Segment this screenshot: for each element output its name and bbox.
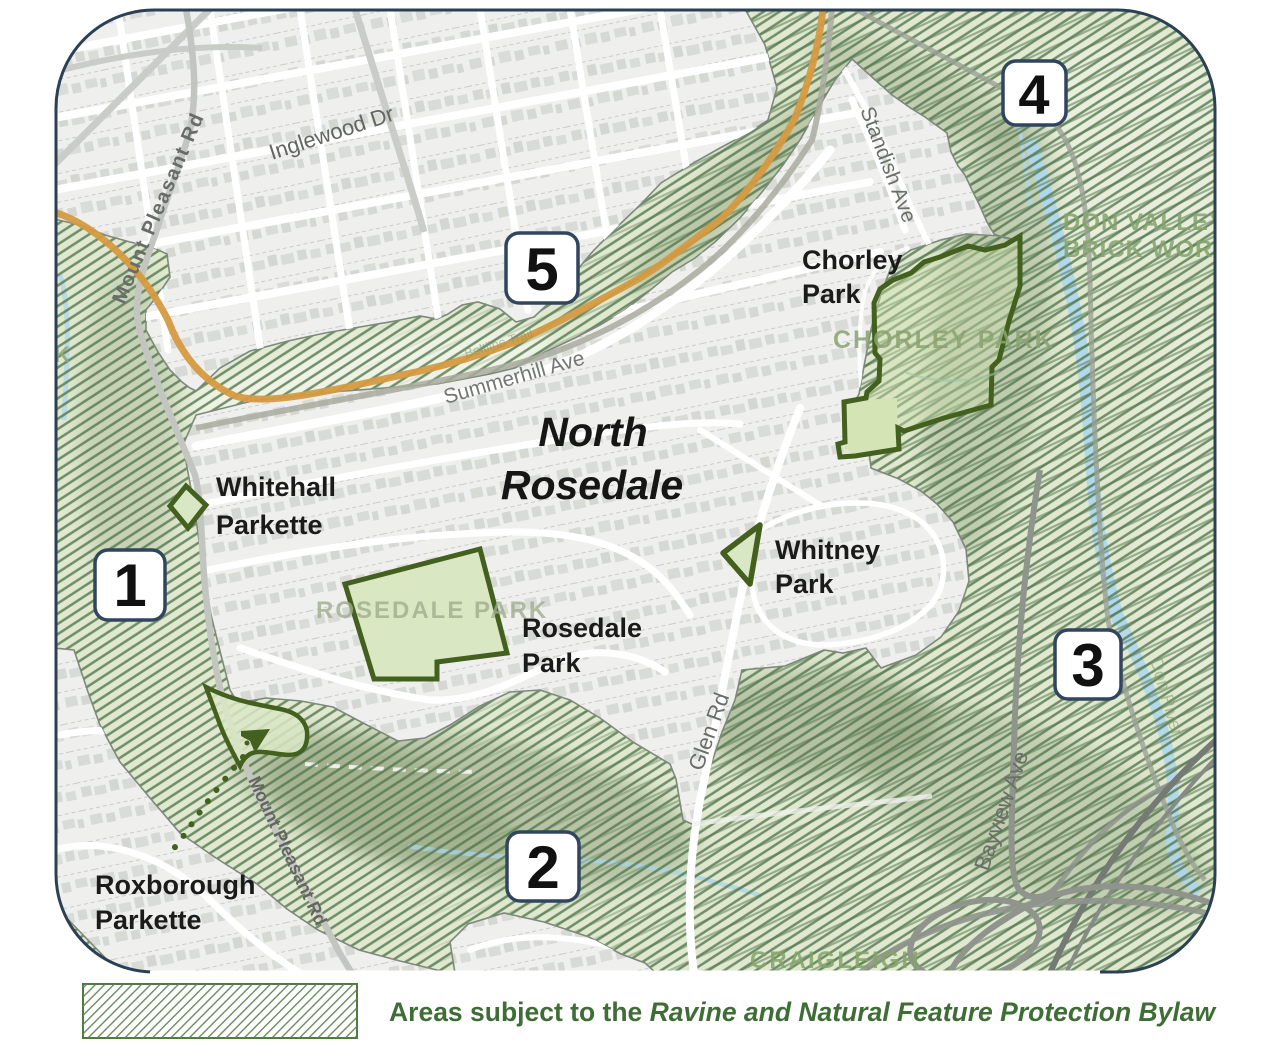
svg-text:MOORE PARK: MOORE PARK (0, 342, 72, 367)
svg-text:Park: Park (802, 279, 862, 309)
svg-text:1: 1 (113, 552, 146, 619)
svg-text:Parkette: Parkette (95, 905, 202, 935)
svg-text:DON VALLEY: DON VALLEY (1063, 209, 1226, 236)
svg-text:Rosedale: Rosedale (501, 462, 683, 508)
svg-text:Parkette: Parkette (216, 510, 323, 540)
svg-text:Chorley: Chorley (802, 245, 903, 275)
svg-text:ROSEDALE PARK: ROSEDALE PARK (316, 597, 548, 624)
svg-text:4: 4 (1018, 63, 1049, 126)
svg-text:North: North (538, 409, 647, 455)
svg-text:Roxborough: Roxborough (95, 870, 255, 900)
svg-text:2: 2 (526, 834, 559, 901)
svg-text:Whitehall: Whitehall (216, 472, 336, 502)
svg-text:CHORLEY PARK: CHORLEY PARK (833, 326, 1055, 354)
svg-text:CRAIGLEIGH: CRAIGLEIGH (750, 947, 921, 974)
svg-text:Rosedale: Rosedale (522, 613, 642, 643)
svg-text:Park: Park (522, 648, 582, 678)
svg-text:Whitney: Whitney (775, 535, 880, 565)
svg-text:3: 3 (1071, 632, 1104, 699)
svg-text:Park: Park (775, 569, 835, 599)
svg-text:Areas subject to the Ravine an: Areas subject to the Ravine and Natural … (389, 997, 1218, 1027)
svg-text:BRICK WORKS: BRICK WORKS (1063, 236, 1249, 263)
svg-text:5: 5 (525, 236, 558, 303)
